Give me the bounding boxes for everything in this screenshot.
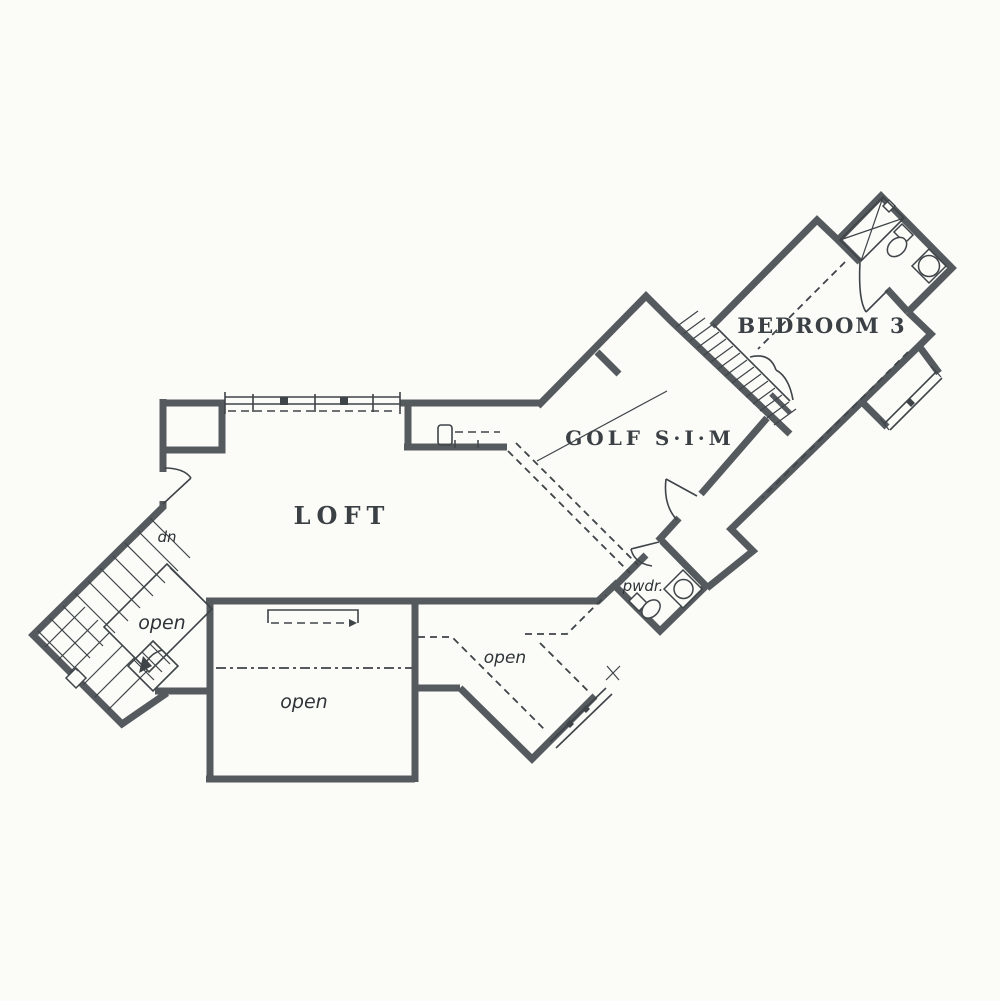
open-edge-dash-2: [516, 443, 638, 565]
room-label-powder: pwdr.: [622, 577, 664, 595]
wall-open-mid-diagonals: [460, 688, 595, 759]
wall-loft-bottom: [206, 582, 618, 601]
room-label-loft: LOFT: [294, 501, 391, 530]
doors: [163, 262, 888, 566]
wall-chimney: [163, 403, 222, 450]
wall-bath-sw-a: [838, 240, 860, 262]
lower-window-band: [550, 688, 612, 748]
label-open-stair: open: [138, 612, 185, 634]
openrect-beam-arrow: [349, 619, 357, 627]
loft-window-mullion-1: [280, 397, 288, 405]
wall-bath-sw-b: [887, 289, 908, 312]
wall-bay-ne: [919, 346, 939, 373]
bath-sink-basin: [919, 256, 940, 277]
powder-door-leaf: [631, 542, 659, 549]
room-label-bedroom-3: BEDROOM 3: [737, 313, 906, 338]
wall-bedroom-nw: [712, 220, 839, 326]
loft-door-arc: [164, 468, 191, 478]
walls: [33, 196, 952, 782]
loft-window-mullion-2: [340, 397, 348, 405]
loft-closet-fixture: [438, 425, 452, 445]
stair-return-flight: [128, 641, 178, 691]
golfsim-door-leaf: [666, 479, 697, 496]
bath-door-arc: [860, 262, 866, 312]
floor-plan-canvas: LOFT GOLF S·I·M BEDROOM 3 pwdr. open ope…: [0, 0, 1000, 1001]
floor-plan-sheet: LOFT GOLF S·I·M BEDROOM 3 pwdr. open ope…: [0, 0, 1000, 1001]
label-stair-dn: dn: [157, 528, 176, 546]
closet-door-arc-1: [750, 356, 776, 370]
loft-door-leaf: [163, 478, 191, 504]
wall-golfsim-chase: [597, 352, 619, 374]
openrect-beam: [268, 610, 358, 623]
stair-rail-double: [170, 568, 210, 607]
open-mid-dash-inner: [540, 643, 588, 691]
wall-hall-to-powder: [658, 518, 679, 541]
lower-band-x-ticks: [606, 666, 620, 680]
bath-door-leaf: [866, 290, 888, 312]
open-edge-dash-1: [508, 451, 630, 573]
golfsim-door-arc: [665, 479, 677, 520]
room-label-golf-sim: GOLF S·I·M: [565, 426, 735, 450]
powder-sink-basin: [674, 580, 693, 599]
labels: LOFT GOLF S·I·M BEDROOM 3 pwdr. open ope…: [138, 313, 906, 713]
label-open-mid: open: [484, 648, 526, 668]
label-open-below-loft: open: [280, 691, 327, 713]
